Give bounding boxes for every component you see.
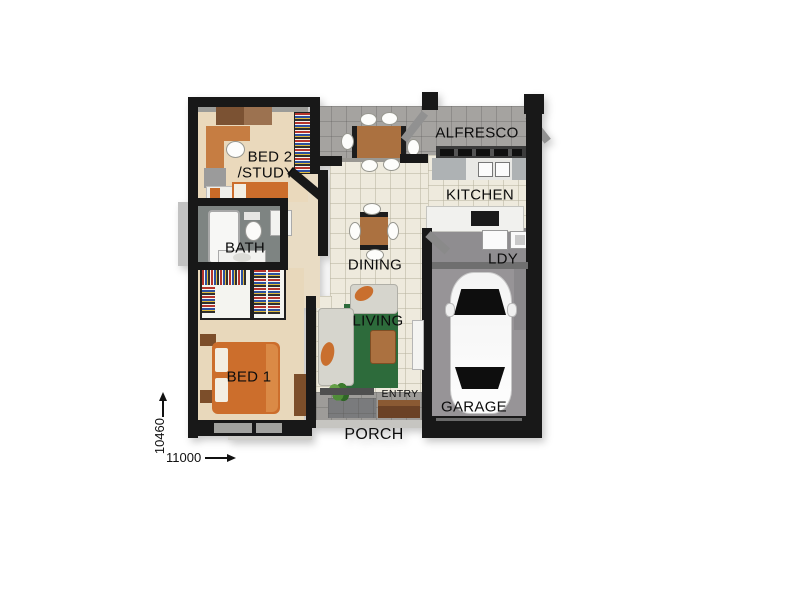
garage-internal-door	[412, 320, 424, 370]
wall-right-outer	[526, 106, 542, 438]
wardrobe-left-clothes-column	[202, 287, 215, 314]
label-dining: DINING	[348, 257, 402, 274]
label-bed2-line2: /STUDY	[238, 165, 295, 182]
label-bed1: BED 1	[227, 369, 272, 386]
bed2-shelf	[216, 107, 272, 125]
wardrobe-right	[252, 270, 286, 320]
dining-chair	[349, 222, 361, 240]
kitchen-sink-right	[495, 162, 510, 177]
horizontal-dim-line	[205, 457, 227, 459]
alfresco-chair	[361, 159, 378, 172]
wardrobe-right-clothes-col1	[254, 270, 266, 314]
bed2-pillow	[234, 184, 246, 199]
desk-chair	[226, 141, 245, 158]
bed2-shelf-top	[244, 107, 272, 125]
label-living: LIVING	[353, 313, 404, 330]
bed1-dresser	[294, 374, 306, 416]
wall-deck-stub-right	[400, 154, 428, 163]
trough-bowl	[515, 235, 525, 245]
wall-living-left	[306, 296, 316, 428]
label-bath: BATH	[225, 240, 265, 257]
label-porch: PORCH	[344, 426, 403, 444]
wall-bath-robe	[188, 262, 286, 270]
bed2-cabinet	[204, 168, 226, 188]
wardrobe-left-clothes-rail	[202, 270, 246, 285]
dining-table	[360, 212, 388, 250]
dining-chair	[363, 203, 381, 215]
entry-console-top	[378, 400, 420, 406]
toilet-tank	[244, 212, 260, 220]
right-arrow-icon	[227, 454, 236, 462]
label-garage: GARAGE	[441, 399, 507, 416]
garage-door-top-line	[436, 418, 522, 421]
wall-deck-stub-left	[312, 156, 342, 166]
wall-bottom-bed1	[188, 420, 312, 436]
label-alfresco: ALFRESCO	[435, 125, 518, 142]
alfresco-chair	[341, 133, 354, 150]
alfresco-chair	[383, 158, 400, 171]
vertical-dim-line	[162, 400, 164, 417]
kitchen-sink-left	[478, 162, 493, 177]
dining-chair	[387, 222, 399, 240]
car-windshield	[454, 289, 506, 315]
garage-front-wall-and-door	[432, 416, 526, 438]
label-bed2-line1: BED 2	[248, 149, 293, 166]
wardrobe-left	[200, 270, 252, 320]
island-cooktop	[471, 211, 499, 226]
horizontal-dimension-value: 11000	[166, 450, 201, 465]
toilet-bowl	[245, 221, 262, 241]
alfresco-table	[352, 126, 406, 158]
car-mirror-left	[445, 303, 455, 317]
kitchen-island	[426, 206, 524, 232]
wall-bed2-bath	[188, 198, 288, 206]
kitchen-bench	[432, 158, 528, 180]
bbq-burners	[440, 149, 522, 156]
floor-plan: BED 2 /STUDY BATH BED 1 ALFRESCO KITCHEN…	[0, 0, 800, 600]
washing-machine	[482, 230, 508, 250]
window-bed1-right	[256, 423, 282, 433]
alfresco-chair	[360, 113, 377, 126]
entry-console	[378, 400, 420, 418]
car	[450, 272, 512, 414]
coffee-table	[370, 330, 396, 364]
window-bed1-left	[214, 423, 252, 433]
entry-window-frame	[320, 388, 374, 395]
label-kitchen: KITCHEN	[446, 187, 514, 204]
wall-top-bed2	[188, 97, 314, 107]
wardrobe-right-clothes-col2	[268, 270, 280, 314]
wall-left-exterior-face	[178, 202, 188, 266]
wall-hall-vertical	[318, 170, 328, 256]
wall-bath-right	[280, 198, 288, 270]
vertical-dimension-value: 10460	[152, 418, 167, 454]
car-mirror-right	[507, 303, 517, 317]
alfresco-post-left	[422, 92, 438, 110]
alfresco-chair	[381, 112, 398, 125]
car-rear-window	[455, 367, 505, 389]
label-entry: ENTRY	[382, 388, 419, 400]
label-laundry: LDY	[488, 251, 518, 268]
